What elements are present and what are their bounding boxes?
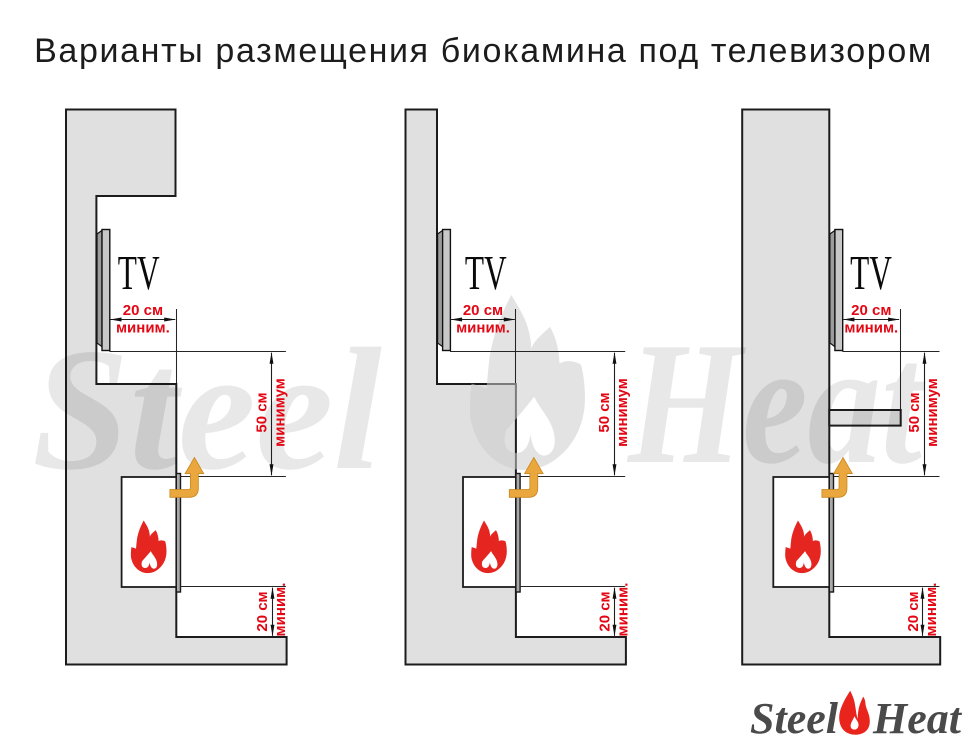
svg-text:минимум: минимум	[924, 378, 941, 447]
svg-text:минимум: минимум	[614, 378, 631, 447]
svg-text:20 см: 20 см	[463, 302, 503, 319]
svg-text:минимум: минимум	[272, 378, 289, 447]
svg-text:20 см: 20 см	[851, 302, 891, 319]
svg-text:TV: TV	[465, 245, 507, 300]
svg-text:50 см: 50 см	[906, 392, 923, 432]
svg-text:миним.: миним.	[456, 319, 510, 336]
svg-text:20 см: 20 см	[254, 591, 271, 631]
svg-text:Варианты размещения биокамина: Варианты размещения биокамина под телеви…	[34, 32, 933, 70]
svg-text:миним.: миним.	[615, 583, 632, 637]
svg-text:50 см: 50 см	[254, 392, 271, 432]
svg-text:20 см: 20 см	[597, 591, 614, 631]
svg-text:50 см: 50 см	[596, 392, 613, 432]
svg-text:миним.: миним.	[272, 583, 289, 637]
svg-text:20 см: 20 см	[905, 591, 922, 631]
svg-text:TV: TV	[118, 245, 160, 300]
svg-text:миним.: миним.	[923, 583, 940, 637]
svg-text:миним.: миним.	[116, 319, 170, 336]
svg-text:миним.: миним.	[844, 319, 898, 336]
svg-text:Heat: Heat	[872, 694, 963, 743]
svg-text:TV: TV	[850, 245, 892, 300]
svg-text:Steel: Steel	[750, 694, 839, 743]
svg-text:20 см: 20 см	[123, 302, 163, 319]
